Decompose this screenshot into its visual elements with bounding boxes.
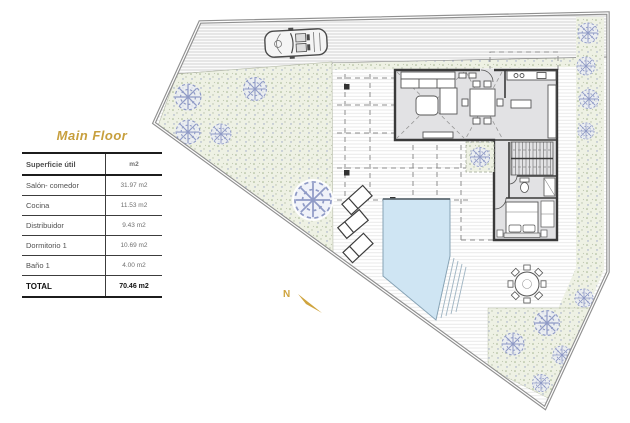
table-total-row: TOTAL 70.46 m2 — [22, 275, 162, 296]
row-label: Salón- comedor — [22, 176, 106, 195]
stairs — [511, 142, 553, 175]
table-header-row: Superficie útil m2 — [22, 154, 162, 176]
tree-icon — [578, 23, 599, 44]
floor-title: Main Floor — [22, 128, 162, 143]
patio-garden — [466, 142, 494, 172]
row-label: Distribuidor — [22, 216, 106, 235]
area-legend: Main Floor Superficie útil m2 Salón- com… — [22, 128, 162, 298]
tree-icon — [175, 84, 202, 111]
toilet-icon — [521, 183, 529, 193]
tree-icon — [211, 124, 232, 145]
table-row: Salón- comedor 31.97 m2 — [22, 176, 162, 196]
total-label: TOTAL — [22, 276, 106, 296]
tree-icon — [534, 310, 560, 336]
tree-icon — [575, 289, 594, 308]
row-value: 4.00 m2 — [106, 262, 162, 269]
north-arrow: N — [283, 289, 322, 313]
row-label: Dormitorio 1 — [22, 236, 106, 255]
car-icon — [264, 26, 328, 60]
row-value: 10.69 m2 — [106, 242, 162, 249]
row-label: Baño 1 — [22, 256, 106, 275]
tree-icon — [532, 374, 550, 392]
table-row: Dormitorio 1 10.69 m2 — [22, 236, 162, 256]
north-label: N — [283, 289, 290, 300]
row-label: Cocina — [22, 196, 106, 215]
sideboard — [423, 132, 453, 138]
tree-icon — [294, 181, 332, 219]
table-row: Distribuidor 9.43 m2 — [22, 216, 162, 236]
row-value: 31.97 m2 — [106, 182, 162, 189]
tree-icon — [577, 57, 596, 76]
header-surface: Superficie útil — [22, 154, 106, 174]
tree-icon — [579, 89, 599, 109]
tree-icon — [578, 123, 595, 140]
area-table: Superficie útil m2 Salón- comedor 31.97 … — [22, 152, 162, 298]
header-unit: m2 — [106, 161, 162, 168]
table-row: Cocina 11.53 m2 — [22, 196, 162, 216]
row-value: 9.43 m2 — [106, 222, 162, 229]
north-arrow-icon — [298, 294, 322, 313]
tree-icon — [502, 333, 525, 356]
table-row: Baño 1 4.00 m2 — [22, 256, 162, 276]
tree-icon — [243, 77, 267, 101]
row-value: 11.53 m2 — [106, 202, 162, 209]
coffee-table — [416, 96, 438, 115]
floorplan-page: N Main Floor Superficie útil m2 Salón- c… — [0, 0, 630, 423]
total-value: 70.46 m2 — [106, 283, 162, 290]
